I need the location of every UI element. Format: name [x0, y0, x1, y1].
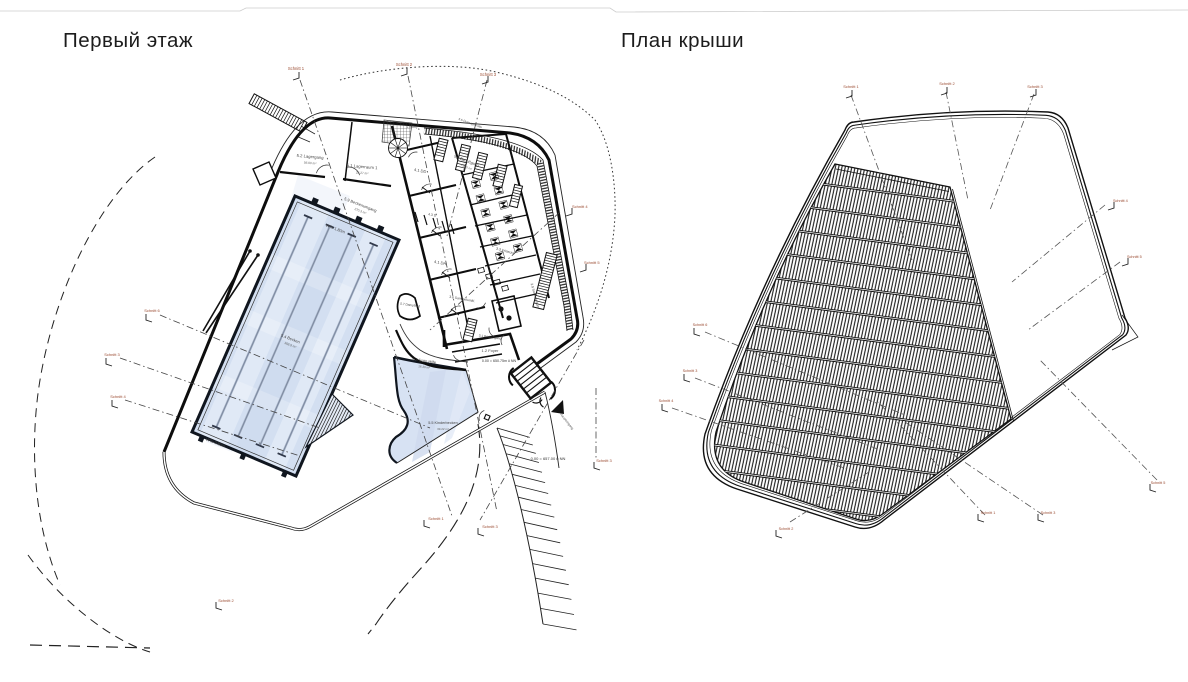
svg-text:Schnitt 3: Schnitt 3 — [596, 458, 612, 463]
svg-text:Schnitt 4: Schnitt 4 — [572, 204, 588, 209]
svg-text:Первый этаж: Первый этаж — [63, 29, 193, 52]
svg-text:Schnitt 5: Schnitt 5 — [584, 260, 600, 265]
svg-text:0.00 = 657.00 ü NN: 0.00 = 657.00 ü NN — [531, 456, 566, 461]
svg-text:Schnitt 5: Schnitt 5 — [1127, 255, 1142, 259]
svg-text:Schnitt 2: Schnitt 2 — [779, 527, 794, 531]
svg-text:Schnitt 3: Schnitt 3 — [482, 524, 498, 529]
svg-text:Schnitt 4: Schnitt 4 — [659, 399, 674, 403]
svg-text:Schnitt 6: Schnitt 6 — [144, 308, 160, 313]
svg-text:Schnitt 3: Schnitt 3 — [1027, 84, 1043, 89]
svg-text:Schnitt 1: Schnitt 1 — [981, 511, 996, 515]
svg-text:1.2 Foyer: 1.2 Foyer — [482, 348, 500, 353]
svg-text:Schnitt 4: Schnitt 4 — [110, 394, 126, 399]
svg-text:Schnitt 6: Schnitt 6 — [693, 323, 708, 327]
svg-text:Schnitt 4: Schnitt 4 — [1113, 199, 1128, 203]
svg-text:Schnitt 1: Schnitt 1 — [428, 516, 444, 521]
svg-text:Schnitt 3: Schnitt 3 — [1041, 511, 1056, 515]
svg-text:Schnitt 3: Schnitt 3 — [104, 352, 120, 357]
svg-text:Schnitt 2: Schnitt 2 — [218, 598, 234, 603]
svg-text:Schnitt 3: Schnitt 3 — [683, 369, 698, 373]
svg-text:Schnitt 3: Schnitt 3 — [480, 72, 497, 77]
svg-text:0.00 = 650.75m ü NN: 0.00 = 650.75m ü NN — [482, 359, 517, 363]
svg-text:Schnitt 5: Schnitt 5 — [1151, 481, 1166, 485]
svg-text:План крыши: План крыши — [621, 29, 744, 52]
svg-text:Schnitt 1: Schnitt 1 — [288, 66, 305, 71]
svg-text:Schnitt 2: Schnitt 2 — [939, 81, 955, 86]
svg-text:1.5 Obj.: 1.5 Obj. — [406, 125, 417, 129]
svg-text:5.5 Kinderbecken: 5.5 Kinderbecken — [428, 421, 458, 425]
svg-text:Schnitt 1: Schnitt 1 — [843, 84, 859, 89]
svg-text:Schnitt 2: Schnitt 2 — [396, 62, 413, 67]
svg-text:39.22 m²: 39.22 m² — [437, 427, 449, 431]
